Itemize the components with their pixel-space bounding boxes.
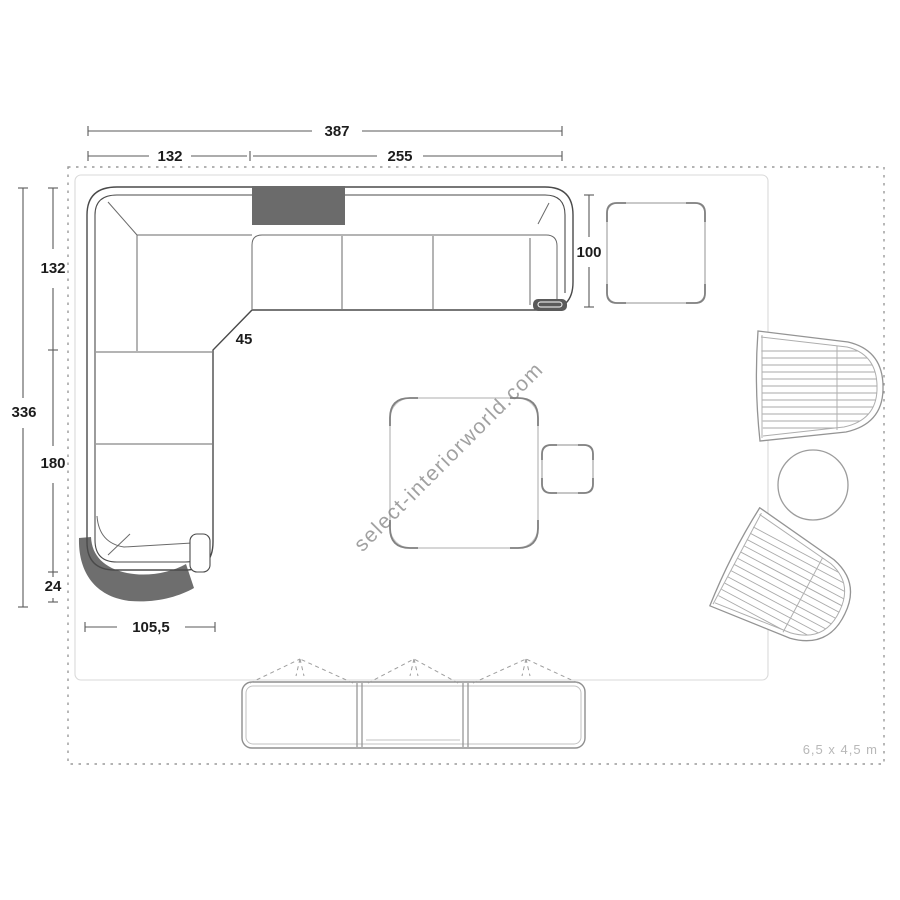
sofa-end-bolster	[190, 534, 210, 572]
dim-180-label: 180	[40, 455, 65, 472]
dim-100-label: 100	[576, 244, 601, 261]
dimension-100: 100	[576, 195, 601, 307]
small-side-table	[542, 445, 593, 493]
dimension-336: 336	[11, 188, 36, 607]
dim-132-left-label: 132	[40, 260, 65, 277]
room-size-label: 6,5 x 4,5 m	[803, 742, 878, 757]
dimension-24: 24	[45, 572, 62, 602]
dimension-255: 255	[253, 148, 562, 165]
dim-132-top-label: 132	[157, 148, 182, 165]
dimension-105-5: 105,5	[85, 619, 215, 636]
dim-387-label: 387	[324, 123, 349, 140]
sofa-cushion-block	[252, 235, 557, 309]
sofa-corner-seam-bl	[108, 534, 130, 555]
sofa-corner-seam-tl	[108, 202, 137, 235]
sideboard-body	[242, 682, 585, 748]
coffee-table	[390, 398, 538, 548]
sideboard	[242, 659, 585, 748]
dimension-387: 387	[88, 123, 562, 140]
sofa-chaise-front-curve	[97, 516, 192, 547]
ottoman-top	[607, 203, 705, 303]
sofa-throw	[252, 186, 345, 225]
dimension-132-left: 132	[40, 188, 65, 350]
round-side-table	[778, 450, 848, 520]
sofa-corner-seam-tr	[538, 203, 549, 224]
dimension-180: 180	[40, 350, 65, 572]
small-side-table-top	[542, 445, 593, 493]
floor-plan-svg: 387 132 255 336 132 180 24	[0, 0, 900, 900]
door-swing-lines	[250, 659, 578, 683]
dim-105-5-label: 105,5	[132, 619, 170, 636]
ottoman	[607, 203, 705, 303]
dim-24-label: 24	[45, 578, 62, 595]
coffee-table-top	[390, 398, 538, 548]
floor-plan: 387 132 255 336 132 180 24	[0, 0, 900, 900]
dimension-132-top: 132	[88, 148, 250, 165]
dim-255-label: 255	[387, 148, 412, 165]
armchair-top	[756, 331, 884, 441]
dim-336-label: 336	[11, 404, 36, 421]
armchair-bottom	[706, 507, 871, 664]
dim-45-label: 45	[236, 331, 253, 348]
